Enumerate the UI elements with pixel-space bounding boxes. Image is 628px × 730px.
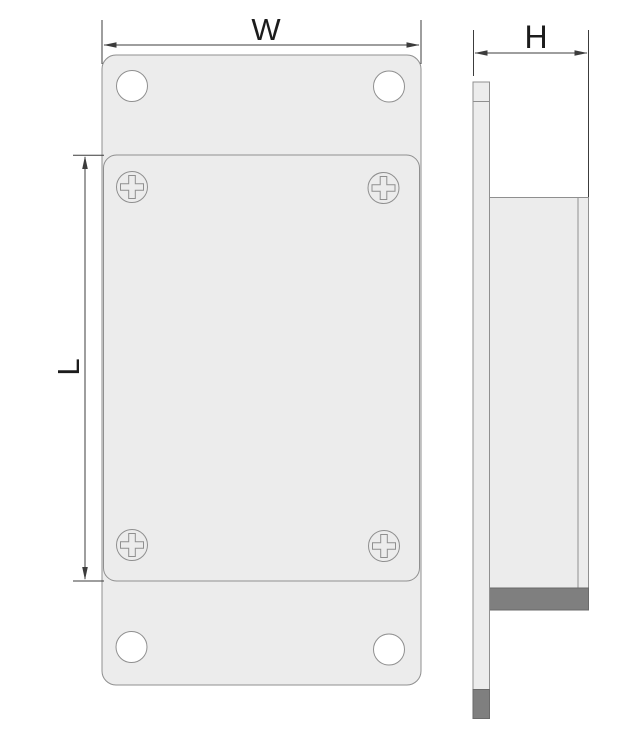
side-base-plate [488,588,589,610]
dimension-arrowhead-icon-h-right [575,50,588,56]
cover-outline [104,155,420,581]
dimension-arrowhead-icon-l-bottom [82,567,88,580]
dimension-arrowhead-icon-h-left [475,50,488,56]
side-flange-dark-tip [473,690,490,719]
dimension-arrowhead-icon-w-left [104,42,117,48]
drawing-area: W H L [0,0,628,730]
side-body-outline [490,198,589,611]
dimension-height: H [474,19,589,197]
dimension-length: L [51,155,104,581]
mounting-hole-top-left [117,71,148,102]
dimension-arrowhead-icon-w-right [407,42,420,48]
mounting-hole-bottom-right [374,634,405,665]
length-dimension-label: L [51,358,86,375]
mounting-hole-bottom-left [116,632,147,663]
front-view [102,55,421,685]
technical-drawing-canvas: W H L [0,0,628,730]
height-dimension-label: H [524,19,547,55]
width-dimension-label: W [251,12,281,47]
mounting-hole-top-right [374,71,405,102]
side-flange-plate [473,82,490,719]
dimension-arrowhead-icon-l-top [82,156,88,169]
side-view [473,82,589,719]
